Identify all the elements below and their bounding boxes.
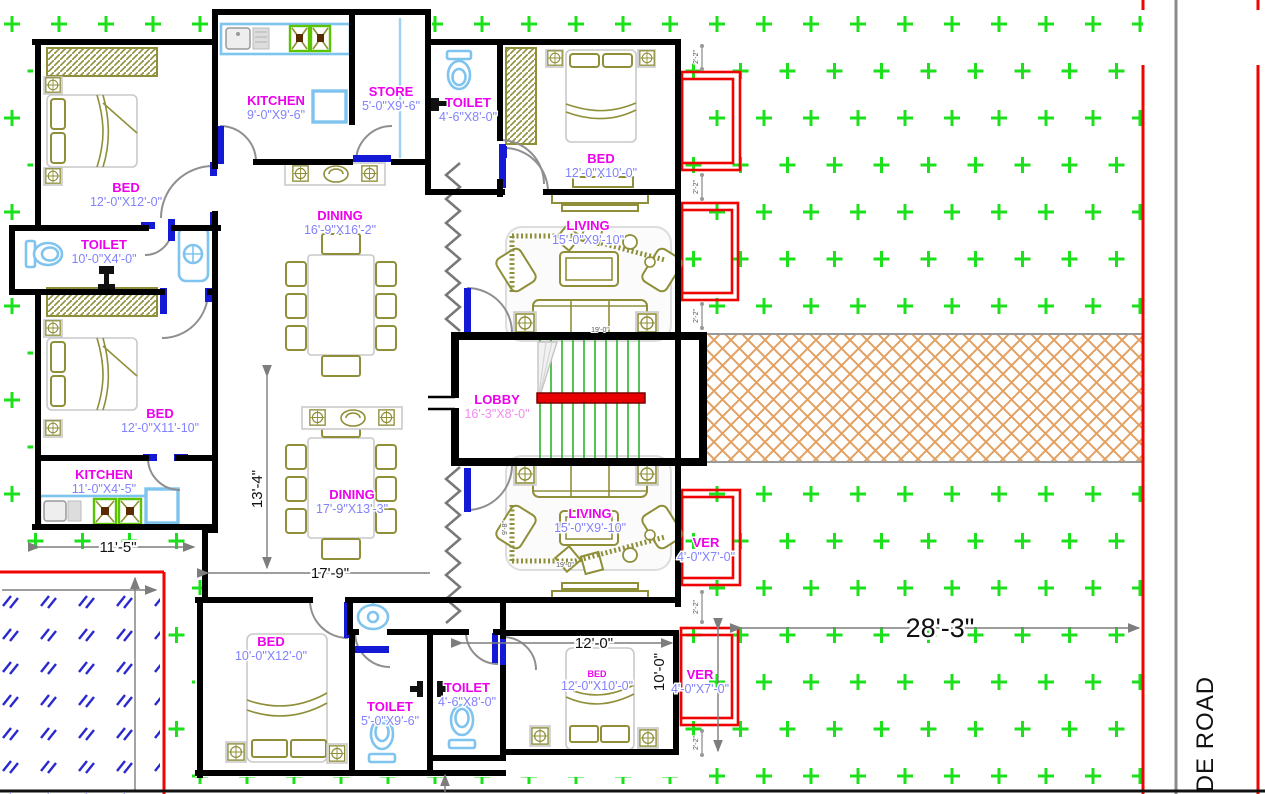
svg-text:TOILET: TOILET	[367, 699, 413, 714]
svg-text:KITCHEN: KITCHEN	[247, 93, 305, 108]
room-label-toilet-bottom: TOILET4'-6"X8'-0"	[438, 680, 496, 709]
svg-text:5'-0"X9'-6": 5'-0"X9'-6"	[362, 99, 420, 113]
svg-text:VER: VER	[693, 535, 720, 550]
svg-text:KITCHEN: KITCHEN	[75, 467, 133, 482]
svg-text:TOILET: TOILET	[445, 95, 491, 110]
dim-13-4: 13'-4"	[249, 470, 266, 508]
svg-text:15'-0"X9'-10": 15'-0"X9'-10"	[554, 521, 626, 535]
svg-text:12'-0"X10'-0": 12'-0"X10'-0"	[565, 166, 637, 180]
room-label-toilet-top-left: TOILET10'-0"X4'-0"	[71, 237, 136, 266]
dim-17-9: 17'-9"	[311, 565, 349, 582]
svg-text:19'-0": 19'-0"	[591, 327, 609, 334]
adjacent-plot	[0, 572, 164, 794]
svg-text:4'-6"X8'-0": 4'-6"X8'-0"	[438, 695, 496, 709]
svg-text:4'-6"X8'-0": 4'-6"X8'-0"	[439, 110, 497, 124]
svg-text:LIVING: LIVING	[568, 506, 611, 521]
svg-text:BED: BED	[257, 634, 284, 649]
svg-text:BED: BED	[146, 406, 173, 421]
stove-icon	[119, 499, 141, 524]
svg-text:12'-0"X12'-0": 12'-0"X12'-0"	[90, 195, 162, 209]
svg-text:DINING: DINING	[329, 487, 375, 502]
svg-text:TOILET: TOILET	[444, 680, 490, 695]
svg-text:DINING: DINING	[317, 208, 363, 223]
room-label-kitchen-mid: KITCHEN11'-0"X4'-5"	[72, 467, 136, 496]
svg-text:17'-9"X13'-3": 17'-9"X13'-3"	[316, 502, 388, 516]
room-label-kitchen-top: KITCHEN9'-0"X9'-6"	[247, 93, 305, 122]
walkway	[705, 334, 1143, 462]
svg-text:VER: VER	[687, 667, 714, 682]
svg-text:11'-0"X4'-5": 11'-0"X4'-5"	[72, 482, 136, 496]
svg-text:9'-8": 9'-8"	[502, 521, 509, 535]
svg-text:5'-0"X9'-6": 5'-0"X9'-6"	[361, 714, 419, 728]
room-label-toilet-top: TOILET4'-6"X8'-0"	[439, 95, 497, 124]
road: 8'-0" WIDE ROAD	[1143, 0, 1265, 794]
svg-text:2'-2": 2'-2"	[693, 736, 700, 750]
svg-text:BED: BED	[587, 151, 614, 166]
svg-text:16'-3"X8'-0": 16'-3"X8'-0"	[464, 407, 529, 421]
svg-text:9'-0"X9'-6": 9'-0"X9'-6"	[247, 108, 305, 122]
room-label-toilet-bottom-left: TOILET5'-0"X9'-6"	[361, 699, 419, 728]
dim-10-0: 10'-0"	[651, 653, 668, 691]
dim-28-3: 28'-3"	[906, 613, 975, 643]
svg-text:4'-0"X7'-0": 4'-0"X7'-0"	[677, 550, 735, 564]
sideboard-console	[302, 407, 402, 429]
svg-text:15'-0"X9'-10": 15'-0"X9'-10"	[552, 233, 624, 247]
svg-text:19'-0": 19'-0"	[556, 562, 574, 569]
stove-icon	[94, 499, 116, 524]
stove-icon	[311, 26, 330, 51]
room-label-store: STORE5'-0"X9'-6"	[362, 84, 420, 113]
svg-text:12'-0"X10'-0": 12'-0"X10'-0"	[561, 679, 633, 693]
svg-text:LIVING: LIVING	[566, 218, 609, 233]
stove-icon	[290, 26, 309, 51]
dim-12-0: 12'-0"	[575, 635, 613, 652]
road-label: 8'-0" WIDE ROAD	[1192, 676, 1219, 794]
svg-text:2'-2": 2'-2"	[693, 180, 700, 194]
svg-text:4'-0"X7'-0": 4'-0"X7'-0"	[671, 682, 729, 696]
svg-text:10'-0"X12'-0": 10'-0"X12'-0"	[235, 649, 307, 663]
dim-11-5: 11'-5"	[99, 539, 136, 556]
svg-text:STORE: STORE	[369, 84, 414, 99]
stair-rail	[537, 393, 645, 403]
svg-text:BED: BED	[587, 669, 607, 679]
svg-text:LOBBY: LOBBY	[474, 392, 520, 407]
floor-plan-canvas: 8'-0" WIDE ROAD	[0, 0, 1265, 794]
svg-text:12'-0"X11'-10": 12'-0"X11'-10"	[121, 421, 199, 435]
svg-text:16'-9"X16'-2": 16'-9"X16'-2"	[304, 223, 376, 237]
svg-text:BED: BED	[112, 180, 139, 195]
svg-text:TOILET: TOILET	[81, 237, 127, 252]
svg-text:2'-2": 2'-2"	[693, 600, 700, 614]
svg-text:2'-2": 2'-2"	[693, 50, 700, 64]
sideboard-console	[285, 163, 385, 185]
svg-text:10'-0"X4'-0": 10'-0"X4'-0"	[71, 252, 136, 266]
svg-text:2'-2": 2'-2"	[693, 309, 700, 323]
